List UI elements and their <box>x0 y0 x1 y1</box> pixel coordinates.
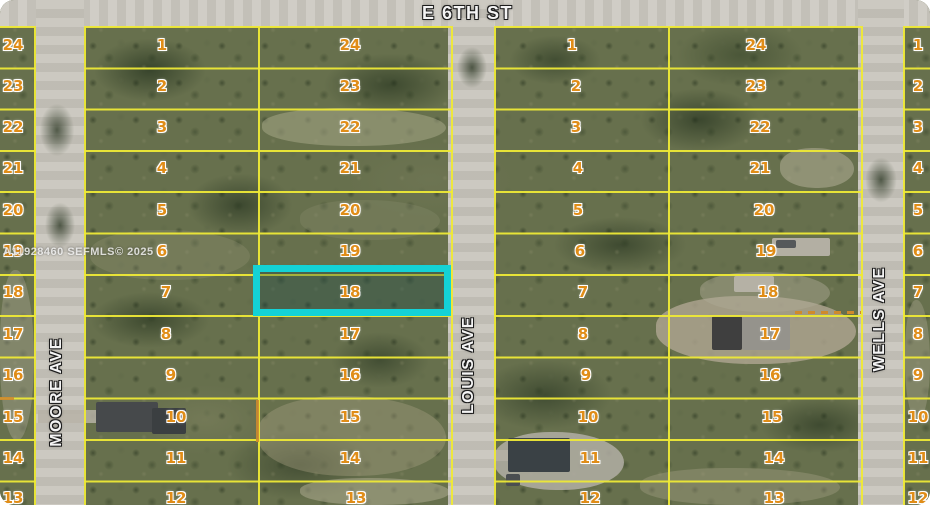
lot-number: 21 <box>0 159 29 177</box>
lot-number: 12 <box>574 489 606 505</box>
lot-number: 4 <box>562 159 594 177</box>
tree-shadow <box>34 95 80 165</box>
lot-number: 8 <box>150 325 182 343</box>
lot-number: 20 <box>748 201 780 219</box>
lot-number: 6 <box>564 242 596 260</box>
lot-number: 10 <box>902 408 930 426</box>
lot-number: 3 <box>902 118 930 136</box>
lot-number: 18 <box>752 283 784 301</box>
lot-number: 20 <box>0 201 29 219</box>
lot-number: 9 <box>570 366 602 384</box>
lot-number: 10 <box>160 408 192 426</box>
street-label-louis-ave: LOUIS AVE <box>460 290 478 440</box>
lot-number: 1 <box>902 36 930 54</box>
lot-number: 15 <box>0 408 29 426</box>
lot-number: 24 <box>0 36 29 54</box>
parcel-block-2 <box>494 26 863 505</box>
screenshot: 24 23 22 21 20 19 18 17 16 15 14 13 1 2 … <box>0 0 930 505</box>
lot-number: 24 <box>334 36 366 54</box>
lot-number: 13 <box>0 489 29 505</box>
lot-number: 21 <box>744 159 776 177</box>
lot-number: 22 <box>744 118 776 136</box>
lot-number: 7 <box>902 283 930 301</box>
lot-number: 14 <box>758 449 790 467</box>
aerial-map[interactable]: 24 23 22 21 20 19 18 17 16 15 14 13 1 2 … <box>0 0 930 505</box>
lot-number: 1 <box>556 36 588 54</box>
lot-number: 24 <box>740 36 772 54</box>
lot-number: 7 <box>150 283 182 301</box>
lot-number: 23 <box>740 77 772 95</box>
lot-number: 10 <box>572 408 604 426</box>
lot-number: 14 <box>0 449 29 467</box>
street-label-e-6th-st: E 6TH ST <box>375 3 560 24</box>
lot-number: 2 <box>902 77 930 95</box>
lot-number: 7 <box>567 283 599 301</box>
lot-number: 2 <box>146 77 178 95</box>
lot-number: 5 <box>562 201 594 219</box>
lot-number: 16 <box>0 366 29 384</box>
parcel-lines-west-edge <box>0 26 36 505</box>
tree-shadow <box>860 150 902 210</box>
lot-number: 11 <box>902 449 930 467</box>
lot-number: 4 <box>902 159 930 177</box>
orange-line-segment <box>0 397 14 400</box>
lot-number: 17 <box>334 325 366 343</box>
lot-number: 17 <box>754 325 786 343</box>
lot-number-highlighted: 18 <box>334 283 366 301</box>
lot-number: 5 <box>902 201 930 219</box>
lot-number: 18 <box>0 283 29 301</box>
lot-number: 11 <box>160 449 192 467</box>
parcel-lines-east-edge <box>903 26 930 505</box>
orange-dashed-line <box>795 311 861 314</box>
orange-line-segment <box>256 400 259 442</box>
lot-number: 3 <box>560 118 592 136</box>
lot-number: 22 <box>334 118 366 136</box>
lot-number: 13 <box>758 489 790 505</box>
lot-number: 14 <box>334 449 366 467</box>
lot-number: 21 <box>334 159 366 177</box>
lot-number: 23 <box>0 77 29 95</box>
lot-number: 4 <box>146 159 178 177</box>
lot-number: 12 <box>902 489 930 505</box>
lot-number: 17 <box>0 325 29 343</box>
lot-number: 2 <box>560 77 592 95</box>
lot-number: 11 <box>574 449 606 467</box>
lot-number: 8 <box>902 325 930 343</box>
lot-number: 15 <box>334 408 366 426</box>
lot-number: 19 <box>334 242 366 260</box>
lot-number: 23 <box>334 77 366 95</box>
lot-number: 8 <box>567 325 599 343</box>
mls-watermark: A11928460 SEFMLS© 2025 <box>3 246 154 258</box>
lot-number: 16 <box>754 366 786 384</box>
lot-number: 5 <box>146 201 178 219</box>
street-label-wells-ave: WELLS AVE <box>871 244 889 394</box>
lot-number: 6 <box>902 242 930 260</box>
street-label-moore-ave: MOORE AVE <box>48 317 66 467</box>
lot-number: 22 <box>0 118 29 136</box>
lot-number: 20 <box>334 201 366 219</box>
lot-number: 1 <box>146 36 178 54</box>
lot-number: 12 <box>160 489 192 505</box>
lot-number: 16 <box>334 366 366 384</box>
lot-number: 13 <box>340 489 372 505</box>
lot-number: 9 <box>155 366 187 384</box>
lot-number: 19 <box>750 242 782 260</box>
lot-number: 15 <box>756 408 788 426</box>
tree-shadow <box>452 40 492 95</box>
lot-number: 9 <box>902 366 930 384</box>
lot-number: 3 <box>146 118 178 136</box>
